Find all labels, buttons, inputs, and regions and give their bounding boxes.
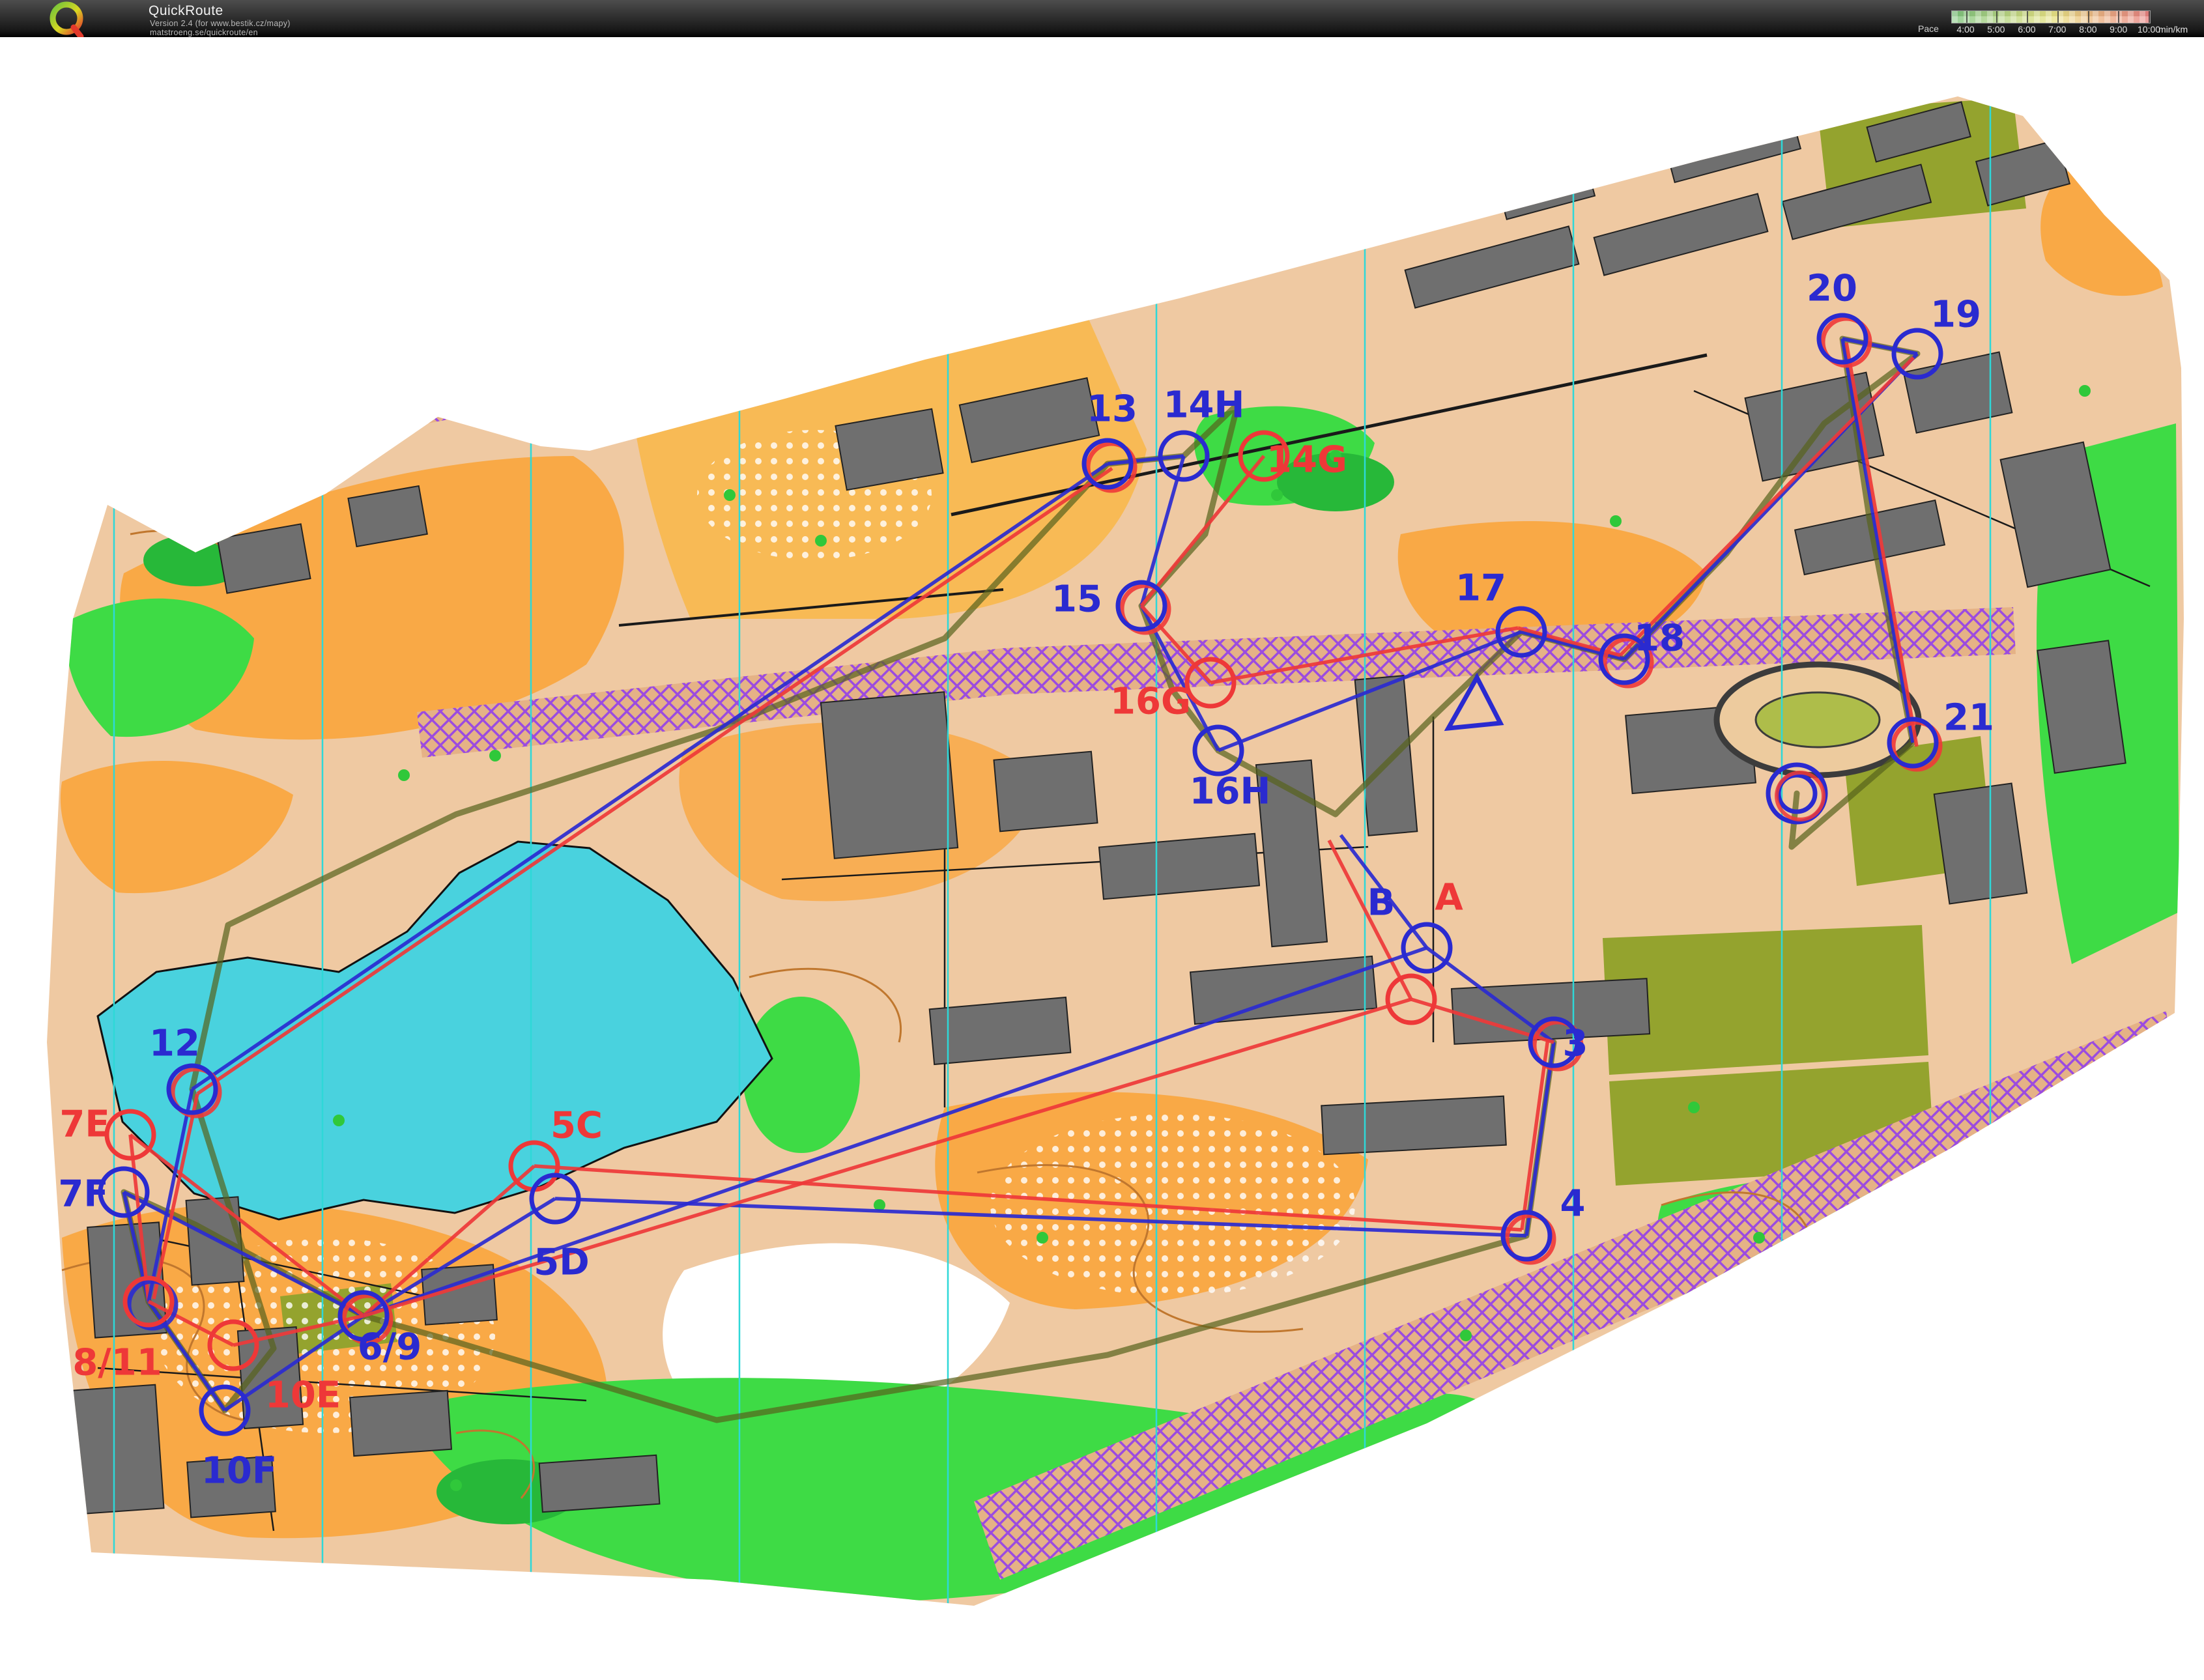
control-label-14G: 14G: [1267, 439, 1347, 481]
control-label-10F: 10F: [201, 1450, 277, 1492]
control-label-B: B: [1367, 882, 1395, 924]
pace-unit-label: min/km: [2158, 24, 2188, 35]
quickroute-logo-icon: [38, 1, 122, 37]
pace-tick-mark: [2057, 11, 2059, 23]
control-label-13: 13: [1087, 388, 1138, 431]
control-label-6/9: 6/9: [358, 1326, 422, 1369]
pace-tick-mark: [2088, 11, 2089, 23]
pace-tick-label: 10:00: [2138, 24, 2160, 35]
pace-tick-label: 8:00: [2079, 24, 2097, 35]
control-label-14H: 14H: [1164, 384, 1245, 427]
pace-tick-mark: [1966, 11, 1968, 23]
pace-tick-mark: [1996, 11, 1997, 23]
control-label-4: 4: [1560, 1183, 1586, 1225]
pace-tick-label: 4:00: [1956, 24, 1974, 35]
control-label-3: 3: [1563, 1023, 1588, 1065]
pace-tick-label: 5:00: [1987, 24, 2005, 35]
control-label-16G: 16G: [1110, 681, 1191, 723]
control-label-16H: 16H: [1190, 771, 1271, 813]
pace-tick-mark: [2149, 11, 2150, 23]
control-label-7E: 7E: [59, 1103, 109, 1146]
control-label-12: 12: [149, 1023, 200, 1065]
app-url-text: matstroeng.se/quickroute/en: [150, 28, 258, 37]
control-label-A: A: [1435, 877, 1463, 919]
map-canvas[interactable]: 1314H14G1516G16H1718192021127E7F8/1110E1…: [0, 0, 2204, 1677]
control-label-18: 18: [1634, 618, 1685, 660]
control-label-17: 17: [1455, 567, 1506, 610]
control-label-10E: 10E: [265, 1374, 341, 1417]
control-label-15: 15: [1052, 578, 1102, 621]
control-label-7F: 7F: [58, 1173, 108, 1216]
control-label-19: 19: [1930, 294, 1981, 336]
control-label-5D: 5D: [534, 1242, 589, 1284]
control-label-21: 21: [1943, 697, 1994, 739]
app-header: QuickRoute Version 2.4 (for www.bestik.c…: [0, 0, 2204, 37]
app-version-text: Version 2.4 (for www.bestik.cz/mapy): [150, 19, 291, 28]
pace-tick-label: 7:00: [2048, 24, 2066, 35]
pace-gradient-bar: [1951, 10, 2151, 23]
pace-tick-mark: [2027, 11, 2028, 23]
pace-legend-label: Pace: [1918, 23, 1939, 34]
app-title: QuickRoute: [149, 3, 223, 19]
control-label-8/11: 8/11: [72, 1342, 162, 1384]
pace-tick-mark: [2118, 11, 2119, 23]
map-viewport[interactable]: 1314H14G1516G16H1718192021127E7F8/1110E1…: [0, 0, 2204, 1677]
control-label-20: 20: [1807, 268, 1857, 310]
map-stadium-track: [1717, 664, 1919, 775]
pace-tick-label: 9:00: [2110, 24, 2127, 35]
pace-tick-label: 6:00: [2018, 24, 2035, 35]
control-label-5C: 5C: [551, 1105, 603, 1147]
